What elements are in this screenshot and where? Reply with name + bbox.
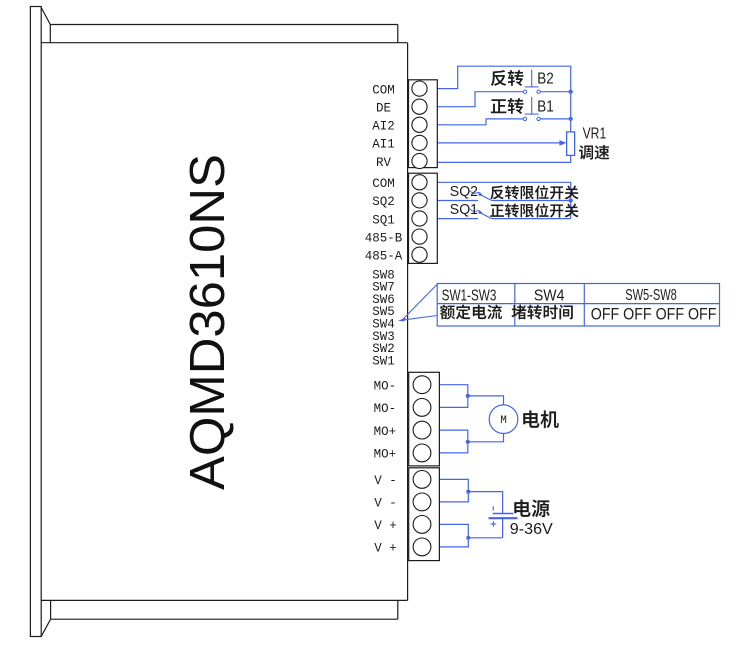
svg-text:DE: DE [376,102,391,116]
svg-text:485-A: 485-A [365,250,403,264]
svg-text:RV: RV [376,156,392,170]
svg-text:SQ2: SQ2 [450,183,478,200]
svg-text:SQ1: SQ1 [450,201,478,218]
svg-text:9-36V: 9-36V [510,521,554,538]
svg-text:485-B: 485-B [365,231,403,245]
svg-text:V -: V - [374,474,397,488]
svg-text:M: M [500,415,507,427]
svg-text:SQ1: SQ1 [372,213,395,227]
svg-text:MO-: MO- [374,380,397,394]
svg-text:AI1: AI1 [372,138,395,152]
svg-text:COM: COM [372,177,395,191]
svg-text:COM: COM [372,83,395,97]
svg-text:MO+: MO+ [374,425,397,439]
svg-text:MO+: MO+ [374,448,397,462]
svg-text:SW1-SW3: SW1-SW3 [442,287,497,304]
svg-text:MO-: MO- [374,402,397,416]
svg-text:SQ2: SQ2 [372,195,395,209]
svg-text:AQMD3610NS: AQMD3610NS [181,154,235,490]
svg-text:V +: V + [374,519,397,533]
svg-text:SW4: SW4 [534,287,565,304]
svg-text:VR1: VR1 [583,125,607,142]
svg-text:AI2: AI2 [372,120,395,134]
svg-text:V +: V + [374,542,397,556]
svg-text:V -: V - [374,497,397,511]
svg-text:SW1: SW1 [372,354,395,368]
svg-text:OFF OFF OFF OFF: OFF OFF OFF OFF [591,306,717,324]
svg-text:B2: B2 [537,71,554,88]
svg-text:B1: B1 [537,98,554,115]
svg-text:SW5-SW8: SW5-SW8 [625,287,677,304]
